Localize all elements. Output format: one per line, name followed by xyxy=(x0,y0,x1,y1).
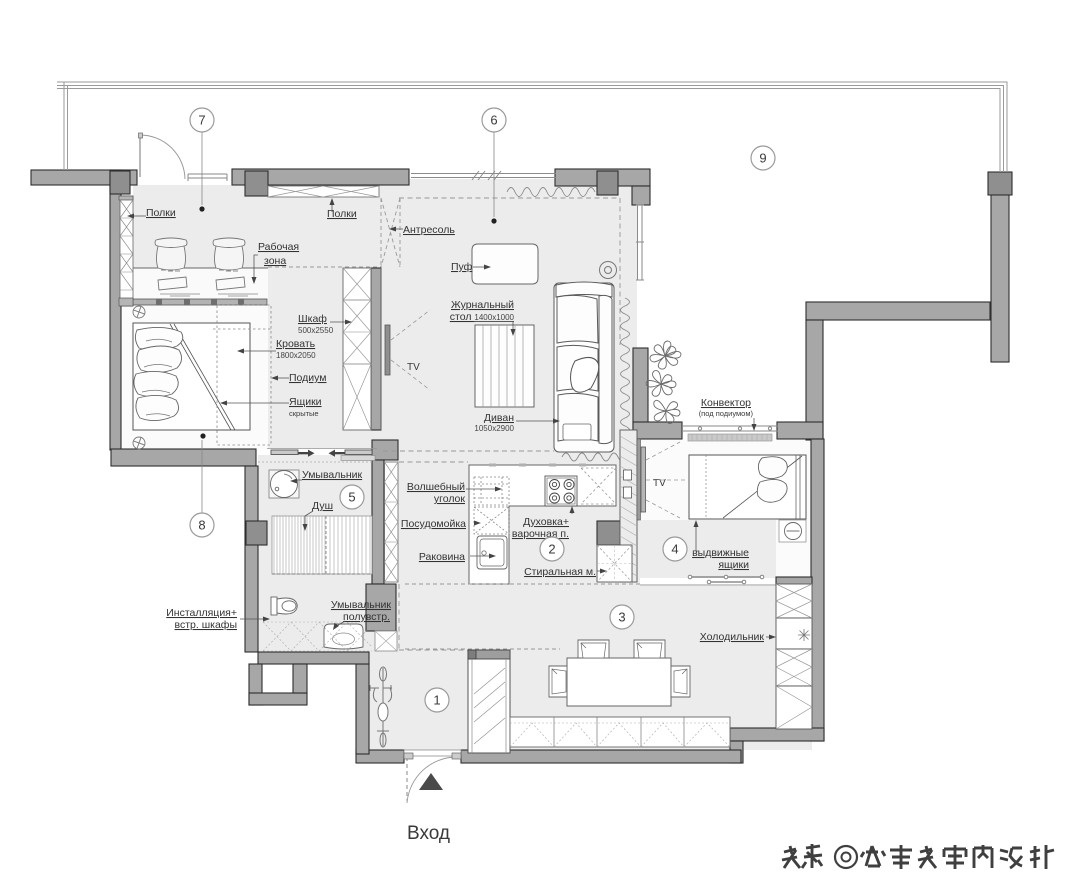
svg-text:2: 2 xyxy=(548,542,555,557)
svg-text:Рабочая: Рабочая xyxy=(258,241,299,253)
svg-text:зона: зона xyxy=(264,255,286,267)
svg-text:7: 7 xyxy=(198,113,205,128)
svg-text:500х2550: 500х2550 xyxy=(298,326,334,335)
svg-text:встр. шкафы: встр. шкафы xyxy=(175,619,237,631)
svg-text:4: 4 xyxy=(671,542,678,557)
svg-text:6: 6 xyxy=(490,113,497,128)
svg-text:1: 1 xyxy=(433,693,440,708)
svg-text:1800х2050: 1800х2050 xyxy=(276,351,316,360)
svg-text:Ящики: Ящики xyxy=(289,396,322,408)
svg-text:Волшебный: Волшебный xyxy=(407,481,465,493)
svg-text:Диван: Диван xyxy=(484,412,514,424)
svg-text:5: 5 xyxy=(348,490,355,505)
svg-text:Раковина: Раковина xyxy=(419,551,465,563)
svg-text:Умывальник: Умывальник xyxy=(331,599,392,611)
svg-text:уголок: уголок xyxy=(434,493,466,505)
svg-text:TV: TV xyxy=(407,362,420,373)
svg-text:Журнальный: Журнальный xyxy=(451,299,514,311)
svg-text:Полки: Полки xyxy=(146,207,176,219)
svg-text:полувстр.: полувстр. xyxy=(343,611,390,623)
svg-text:Антресоль: Антресоль xyxy=(403,224,455,236)
svg-text:Душ: Душ xyxy=(312,500,333,512)
svg-text:Посудомойка: Посудомойка xyxy=(401,518,466,530)
svg-text:варочная п.: варочная п. xyxy=(512,528,569,540)
svg-text:(под подиумом): (под подиумом) xyxy=(699,409,754,418)
svg-text:Духовка+: Духовка+ xyxy=(523,516,569,528)
svg-text:скрытые: скрытые xyxy=(289,409,319,418)
svg-text:Стиральная м.: Стиральная м. xyxy=(524,566,596,578)
svg-text:1050х2900: 1050х2900 xyxy=(474,424,514,433)
svg-text:Пуф: Пуф xyxy=(451,261,473,273)
svg-text:выдвижные: выдвижные xyxy=(692,547,749,559)
svg-text:9: 9 xyxy=(759,151,766,166)
svg-text:Шкаф: Шкаф xyxy=(298,313,327,325)
svg-text:ящики: ящики xyxy=(718,559,749,571)
svg-text:Конвектор: Конвектор xyxy=(701,397,751,409)
svg-text:Кровать: Кровать xyxy=(276,338,316,350)
svg-text:8: 8 xyxy=(198,518,205,533)
svg-text:3: 3 xyxy=(618,610,625,625)
svg-text:Холодильник: Холодильник xyxy=(700,631,765,643)
svg-text:Полки: Полки xyxy=(327,208,357,220)
svg-text:Умывальник: Умывальник xyxy=(302,469,363,481)
svg-text:стол 1400х1000: стол 1400х1000 xyxy=(450,311,515,323)
svg-text:Вход: Вход xyxy=(407,823,450,844)
svg-text:Инсталляция+: Инсталляция+ xyxy=(166,607,237,619)
svg-text:Подиум: Подиум xyxy=(289,372,327,384)
